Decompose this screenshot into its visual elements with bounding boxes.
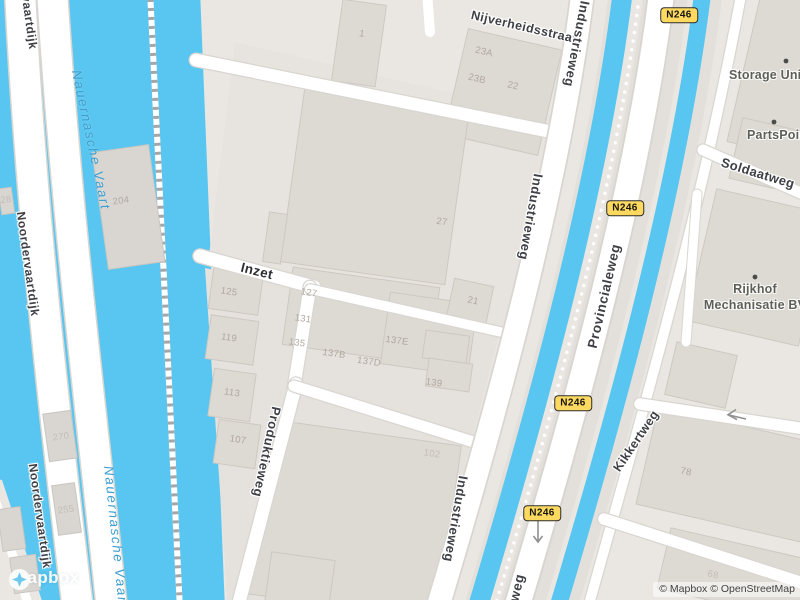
poi-dot-partspoint xyxy=(772,120,777,125)
poi-dot-storage-unit xyxy=(784,59,789,64)
road-shield-n246: N246 xyxy=(554,395,592,411)
road-shield-n246: N246 xyxy=(660,7,698,23)
building xyxy=(43,410,77,461)
building xyxy=(265,552,335,600)
attribution-text: © Mapbox © OpenStreetMap xyxy=(659,583,795,595)
map-canvas[interactable]: Nijverheidsstraat Industrieweg Industrie… xyxy=(0,0,800,600)
map-attribution[interactable]: © Mapbox © OpenStreetMap xyxy=(653,582,800,597)
mapbox-logo[interactable]: mapbox xyxy=(8,568,80,588)
building xyxy=(208,368,256,421)
road-shield-n246: N246 xyxy=(606,200,644,216)
road-shield-n246: N246 xyxy=(523,505,561,521)
road-stub-north xyxy=(427,0,430,32)
poi-dot-rijkhof xyxy=(753,275,758,280)
building xyxy=(425,358,472,392)
building xyxy=(213,419,261,468)
building xyxy=(205,315,259,365)
map-tiles xyxy=(0,0,800,600)
